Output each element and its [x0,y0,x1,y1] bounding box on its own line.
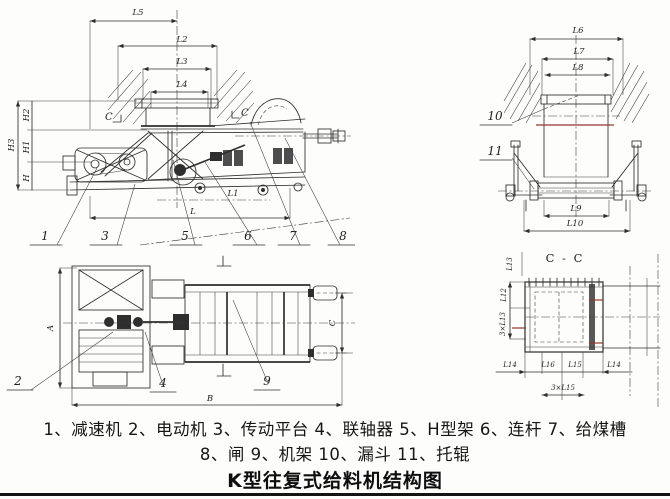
end-top-dimensions: L6 L7 L8 [530,26,623,95]
callout-11: 11 [487,144,502,158]
dim-label-L14-left: L14 [502,361,517,369]
dim-label-H3: H3 [7,139,17,153]
dim-label-L4: L4 [175,80,187,90]
figure-canvas: L5 L2 L3 L4 H3 H2 H1 H C C [0,0,670,499]
side-view-drawing: L5 L2 L3 L4 H3 H2 H1 H C C [5,2,355,252]
dim-label-L6: L6 [571,26,584,36]
plan-drive-unit [72,266,189,388]
side-inner-dimensions: L1 L [90,188,350,245]
end-bottom-dimensions: L9 L10 [524,200,630,231]
callout-1: 1 [41,229,49,243]
callout-3: 3 [101,229,109,243]
dim-label-3xL15: 3×L15 [551,384,575,392]
section-marker-left: C [105,112,113,123]
dim-label-L16: L16 [540,361,555,369]
plan-callouts: 2 4 9 [7,300,280,392]
plan-view-drawing: A [3,252,365,422]
feed-hopper [135,99,218,126]
dim-label-B: B [206,394,213,404]
dim-label-L8: L8 [571,63,584,73]
legend-line-2: 8、闸 9、机架 10、漏斗 11、托辊 [0,441,670,465]
callout-7: 7 [289,229,297,243]
dim-label-3xL13: 3×L13 [499,312,507,336]
section-cc-drawing: C - C L13 [462,246,668,418]
dim-label-L13: L13 [506,257,514,272]
callout-5: 5 [181,229,189,243]
dim-label-L14-right: L14 [606,361,621,369]
dim-label-H1: H1 [22,141,32,155]
dim-label-H: H [22,174,32,183]
dim-label-L9: L9 [569,204,582,214]
callout-10: 10 [487,109,503,123]
dim-label-C: C [328,319,338,326]
section-box [512,254,660,408]
callout-2: 2 [13,374,22,388]
bottom-rule [0,493,670,496]
legend-line-1: 1、减速机 2、电动机 3、传动平台 4、联轴器 5、H型架 6、连杆 7、给煤… [0,416,670,440]
callout-8: 8 [339,229,347,243]
end-view-drawing: L6 L7 L8 [460,5,667,240]
dim-label-L: L [189,207,196,217]
plan-dim-B: B [72,353,342,405]
dim-label-A: A [46,325,56,332]
dim-label-L5: L5 [131,8,143,18]
dim-label-L12: L12 [500,288,508,303]
section-title: C - C [546,251,585,265]
dim-label-L7: L7 [572,47,585,57]
section-bottom-dimensions: L14 L16 L15 L14 3×L15 [496,352,632,400]
dim-label-L3: L3 [175,57,187,67]
drive-unit [63,148,147,182]
dim-label-L1: L1 [226,189,238,199]
plan-trough [63,256,355,376]
dim-label-L10: L10 [566,219,584,229]
figure-title: K型往复式给料机结构图 [0,466,670,493]
dim-label-L2: L2 [175,35,187,45]
end-callouts: 10 11 [480,95,580,189]
dim-label-L15: L15 [567,361,582,369]
dim-label-H2: H2 [22,109,32,123]
section-marker-right: C [241,108,249,119]
